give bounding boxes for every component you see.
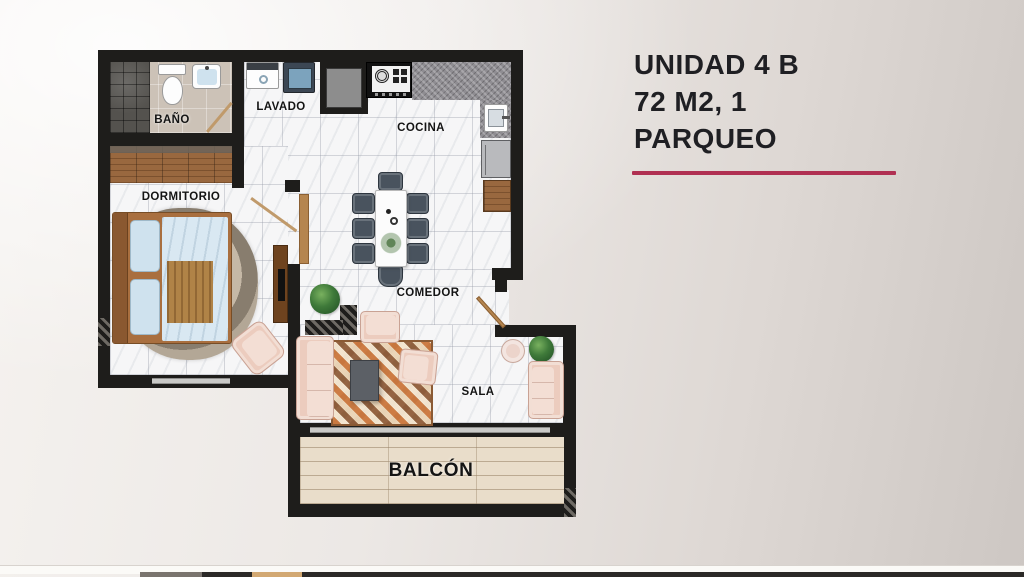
wall-vestibule: [232, 146, 244, 188]
tv-screen: [278, 269, 285, 301]
table-plant-sprig: [375, 226, 407, 261]
dining-chair: [352, 243, 375, 264]
plant-sala: [529, 336, 554, 362]
kitchen-sink: [484, 104, 508, 132]
wall-bano-bottom: [98, 133, 244, 146]
dining-chair: [352, 218, 375, 239]
sofa-left-cushions: [307, 341, 331, 417]
kitchen-faucet: [502, 116, 510, 119]
wall-bano-lavado-divider: [232, 50, 244, 146]
sofa-right: [528, 361, 564, 419]
dining-chair: [406, 243, 429, 264]
toilet-bowl: [162, 76, 183, 105]
sliding-door-balcony: [310, 427, 550, 433]
dining-chair: [406, 193, 429, 214]
room-label-comedor: COMEDOR: [397, 287, 460, 299]
room-label-lavado: LAVADO: [256, 101, 305, 113]
bed-pillow-1: [130, 220, 160, 272]
room-label-cocina: COCINA: [397, 122, 445, 134]
bathroom-sink: [192, 64, 221, 89]
unit-title: UNIDAD 4 B 72 M2, 1 PARQUEO: [634, 46, 934, 157]
pouf: [501, 339, 525, 363]
armchair-top: [360, 311, 400, 343]
stove-knobs: [375, 93, 407, 96]
dryer-glass: [288, 68, 312, 89]
armchair-right-seat: [403, 355, 429, 381]
room-label-bano: BAÑO: [154, 114, 189, 126]
hatch-balcony-corner: [564, 488, 576, 517]
column-sala-horz: [305, 320, 343, 335]
sofa-left: [296, 336, 334, 420]
dining-chair: [406, 218, 429, 239]
bed-throw: [167, 261, 213, 323]
armchair-top-seat: [366, 315, 396, 335]
stove: [366, 62, 412, 98]
unit-title-line-1: UNIDAD 4 B: [634, 46, 934, 83]
wall-entry-stub: [495, 278, 507, 292]
room-label-sala: SALA: [462, 386, 495, 398]
utility-door-panel: [326, 68, 362, 108]
burner-grid: [393, 69, 407, 83]
window-dormitorio: [152, 378, 230, 384]
room-label-balcon: BALCÓN: [389, 460, 474, 482]
bed-pillow-2: [130, 279, 160, 335]
hatch-left-column: [98, 318, 110, 346]
table-decor-dot: [386, 209, 391, 214]
wall-kitchen-right: [511, 50, 523, 280]
wall-dorm-jut: [285, 180, 300, 192]
next-slide-sliver-gray: [140, 572, 202, 577]
wall-balcony-bottom: [288, 504, 576, 517]
wall-top: [98, 50, 523, 62]
unit-title-line-2: 72 M2, 1: [634, 83, 934, 120]
dining-chair: [352, 193, 375, 214]
dining-chair: [378, 265, 403, 287]
kitchen-cabinet: [483, 180, 511, 212]
armchair-right: [397, 348, 438, 386]
washer: [246, 62, 279, 89]
kitchen-counter-top: [412, 62, 511, 100]
armchair-seat: [240, 328, 279, 368]
wall-balcony-left: [288, 423, 300, 517]
unit-title-line-3: PARQUEO: [634, 120, 934, 157]
next-slide-sliver-tan: [252, 572, 302, 577]
washer-top-band: [247, 63, 278, 70]
fridge: [481, 140, 511, 178]
accent-divider: [632, 171, 896, 175]
plant-comedor: [310, 284, 340, 314]
closet-rod: [110, 146, 232, 153]
door-dormitorio-leaf: [299, 194, 309, 264]
shower-area: [110, 62, 150, 133]
coffee-table: [350, 360, 379, 401]
tv-console: [273, 245, 288, 323]
sofa-right-cushions: [532, 367, 554, 415]
sink-basin: [197, 69, 217, 85]
burner-left: [375, 69, 389, 83]
utility-door-frame: [320, 62, 368, 114]
dining-chair: [378, 172, 403, 191]
bed-headboard: [113, 213, 128, 343]
bed: [112, 212, 232, 344]
table-decor-bowl: [390, 217, 398, 225]
washer-dial: [259, 75, 268, 84]
dryer: [283, 62, 315, 93]
room-label-dormitorio: DORMITORIO: [142, 191, 221, 203]
fridge-divider: [485, 145, 486, 175]
sink-faucet-dot: [205, 66, 209, 70]
toilet-tank: [158, 64, 186, 75]
wall-sala-right: [563, 325, 576, 437]
presentation-slide: BAÑO LAVADO COCINA: [0, 0, 1024, 577]
dining-table: [375, 190, 407, 267]
